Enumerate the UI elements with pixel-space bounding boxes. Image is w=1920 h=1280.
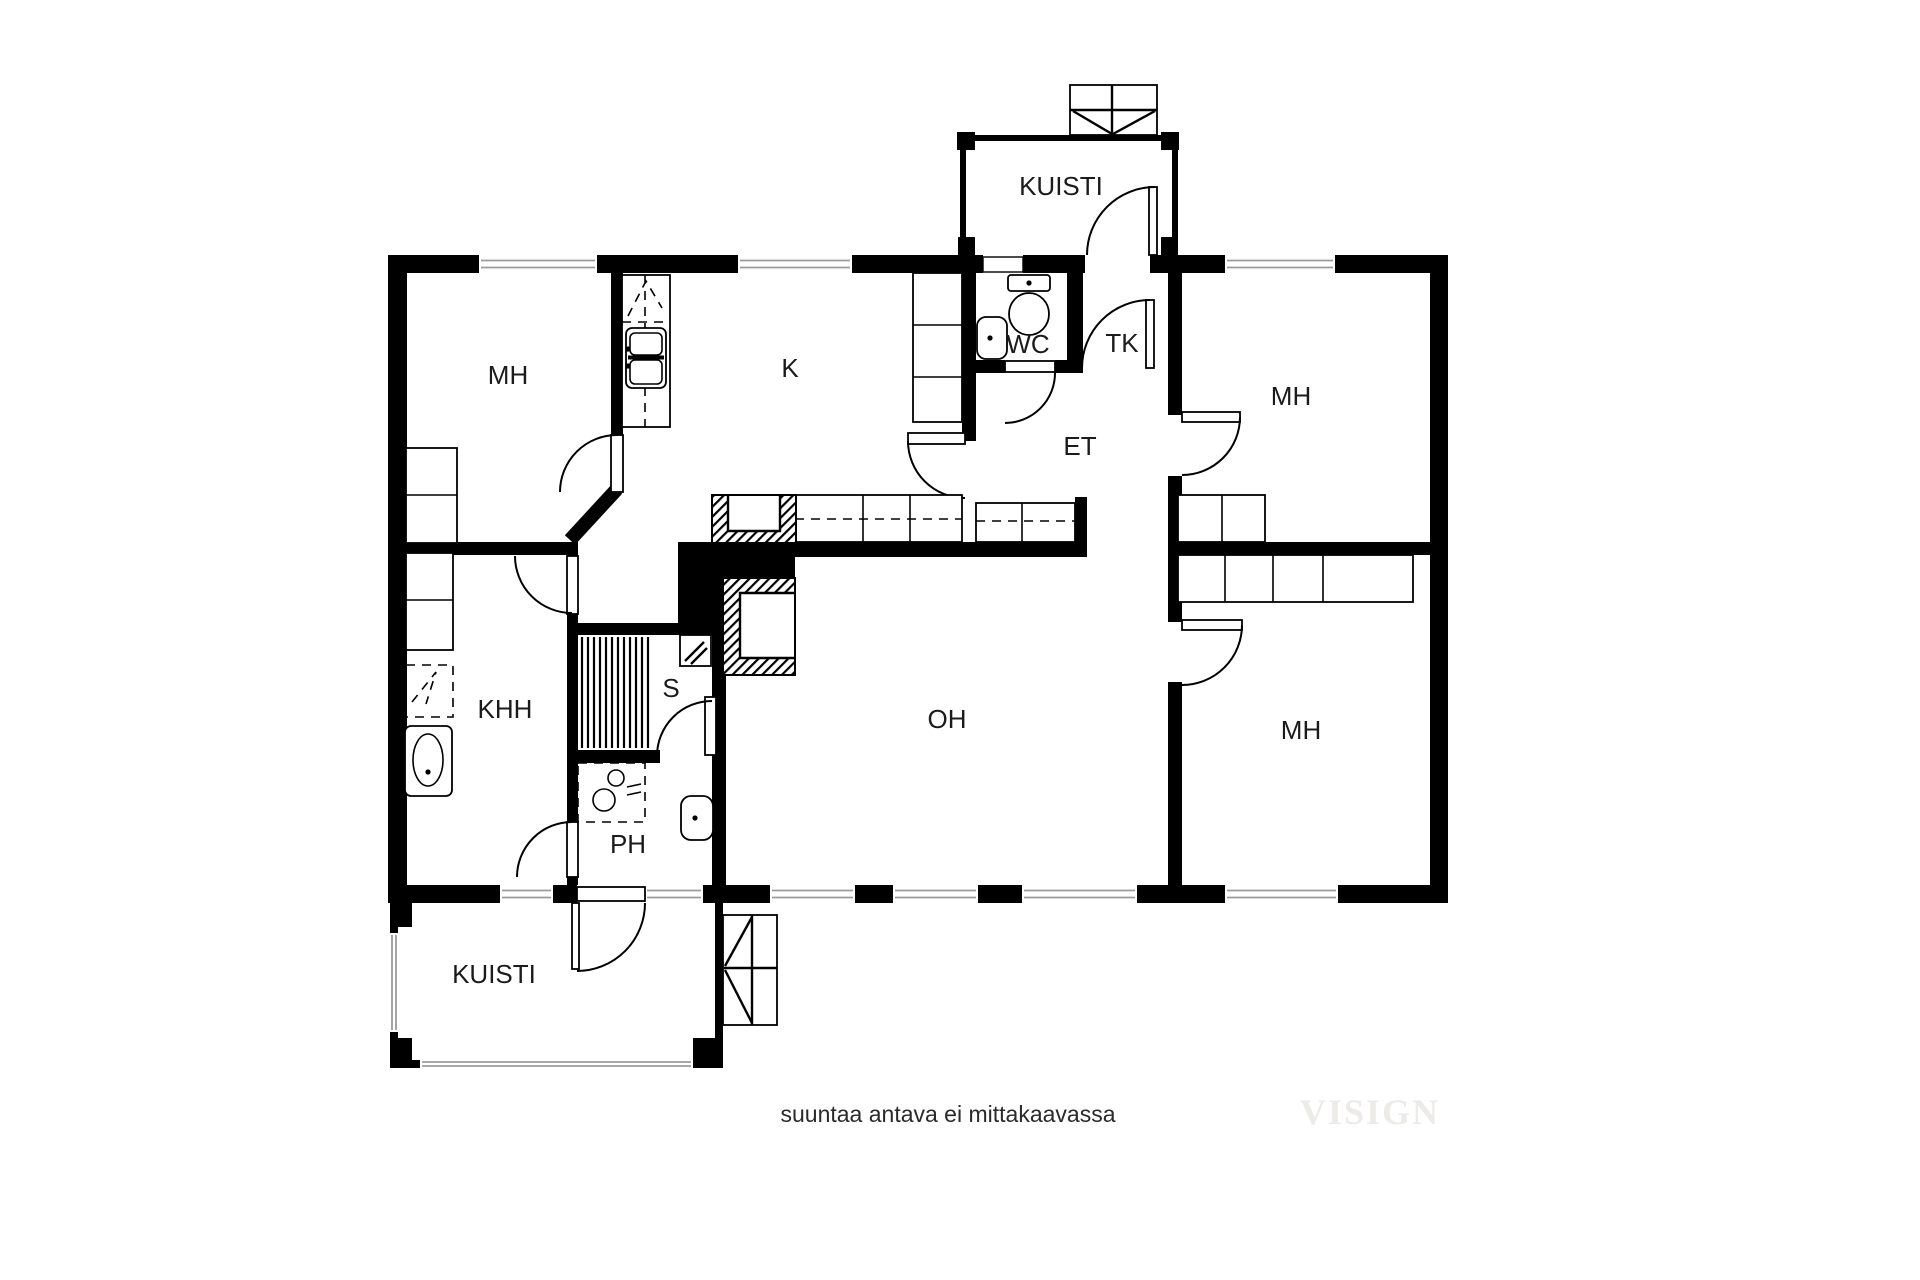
wall-sauna-bottom	[567, 750, 660, 763]
kitchen-counter	[622, 275, 670, 427]
door-mh-top-left	[560, 435, 623, 492]
window	[390, 933, 398, 1032]
room-label-kuisti-bottom: KUISTI	[452, 959, 536, 989]
wall-wc-bottom	[962, 360, 1005, 373]
wardrobe	[1178, 555, 1413, 602]
porch-bottom	[390, 887, 777, 1068]
wall-kitchen-et	[962, 273, 976, 441]
wall-left	[388, 255, 407, 903]
sauna-stove-icon	[680, 635, 711, 666]
room-label-et: ET	[1063, 431, 1096, 461]
fireplace-icon	[712, 495, 796, 543]
wardrobe	[406, 448, 457, 543]
wall-top-seg	[597, 255, 738, 273]
room-label-khh: KHH	[478, 694, 533, 724]
wall-mh-divider	[1182, 542, 1430, 555]
wall-top-seg	[388, 255, 479, 273]
wall-top-seg	[1023, 255, 1085, 273]
shower-icon	[578, 763, 645, 822]
entrance-door-bottom	[572, 887, 645, 971]
window	[893, 885, 978, 903]
kitchen-counter	[795, 495, 962, 542]
wall-bottom-seg	[978, 885, 1022, 903]
wardrobe	[976, 503, 1075, 542]
door-khh-ph	[517, 822, 578, 877]
room-label-sauna: S	[662, 673, 679, 703]
window	[1225, 885, 1338, 903]
wall-khh-right	[567, 877, 578, 885]
room-label-oh: OH	[928, 704, 967, 734]
wall-stub	[1075, 497, 1087, 557]
wall-et-mh	[1168, 273, 1182, 415]
wall-diagonal	[570, 489, 617, 540]
wall-bottom-seg	[388, 885, 500, 903]
wall-right	[1430, 255, 1448, 903]
watermark-logo: VISIGN	[1300, 1092, 1440, 1132]
wall-bottom-seg	[553, 885, 577, 903]
stairs-icon	[723, 915, 777, 1025]
wall-sauna-top	[567, 623, 678, 635]
kitchen-cabinets	[913, 273, 962, 422]
window	[500, 885, 553, 903]
window	[738, 255, 852, 273]
sauna-benches-icon	[582, 637, 648, 748]
floor-plan-page: MH K KUISTI WC TK ET MH KHH S PH OH MH K…	[0, 0, 1920, 1280]
door-arc	[577, 903, 645, 971]
wall-bottom-seg	[855, 885, 893, 903]
porch-corner	[957, 132, 975, 150]
porch-corner	[958, 237, 975, 259]
door-leaf	[1149, 187, 1157, 255]
room-label-mh-top-right: MH	[1271, 381, 1311, 411]
door-wc	[1005, 361, 1055, 423]
door-sauna	[657, 697, 716, 756]
wall-wc-bottom	[1055, 360, 1083, 373]
fireplace-icon	[723, 578, 795, 675]
wall-bottom-seg	[703, 885, 770, 903]
double-sink-icon	[625, 328, 666, 388]
room-label-kitchen: K	[781, 353, 799, 383]
stairs-icon	[1070, 85, 1157, 135]
sink-icon	[977, 317, 1007, 359]
window	[770, 885, 855, 903]
room-label-ph: PH	[610, 829, 646, 859]
wall-wc-tk	[1067, 273, 1083, 373]
wall-top-seg	[1335, 255, 1448, 273]
wall-khh-right	[567, 614, 578, 822]
room-label-wc: WC	[1006, 329, 1049, 359]
window	[1225, 255, 1335, 273]
wall-et-mh	[1168, 682, 1182, 885]
room-label-tk: TK	[1105, 328, 1139, 358]
wardrobe	[1178, 495, 1265, 542]
room-label-mh-bottom-right: MH	[1281, 715, 1321, 745]
room-label-kuisti-top: KUISTI	[1019, 171, 1103, 201]
disclaimer-note: suuntaa antava ei mittakaavassa	[781, 1101, 1116, 1127]
door-leaf-open	[572, 903, 579, 969]
door-mh-bottom-right	[1182, 620, 1242, 685]
sink-icon	[681, 796, 713, 840]
porch-corner	[390, 1038, 412, 1068]
door-leaf	[577, 887, 645, 901]
wall-khh-right	[567, 542, 578, 556]
porch-corner	[1161, 132, 1179, 150]
washing-machine-icon	[406, 665, 453, 717]
porch-corner	[693, 1038, 723, 1068]
porch-corner	[1161, 237, 1178, 259]
sidelight-window	[983, 257, 1023, 272]
wall-bottom-seg	[1338, 885, 1448, 903]
toilet-icon	[1008, 275, 1050, 335]
sink-icon	[405, 726, 452, 796]
floor-plan: MH K KUISTI WC TK ET MH KHH S PH OH MH K…	[0, 0, 1920, 1280]
window	[479, 255, 597, 273]
wall-bottom-seg	[1137, 885, 1225, 903]
room-label-mh-top-left: MH	[488, 360, 528, 390]
window	[1022, 885, 1137, 903]
door-khh-upper	[515, 556, 578, 614]
khh-cabinets	[406, 553, 453, 650]
porch-corner	[390, 903, 412, 927]
door-mh-top-right	[1182, 412, 1240, 475]
window	[420, 1060, 693, 1068]
wall-closet-row	[795, 542, 1087, 557]
window	[645, 885, 703, 903]
door-kitchen-et	[908, 433, 965, 498]
